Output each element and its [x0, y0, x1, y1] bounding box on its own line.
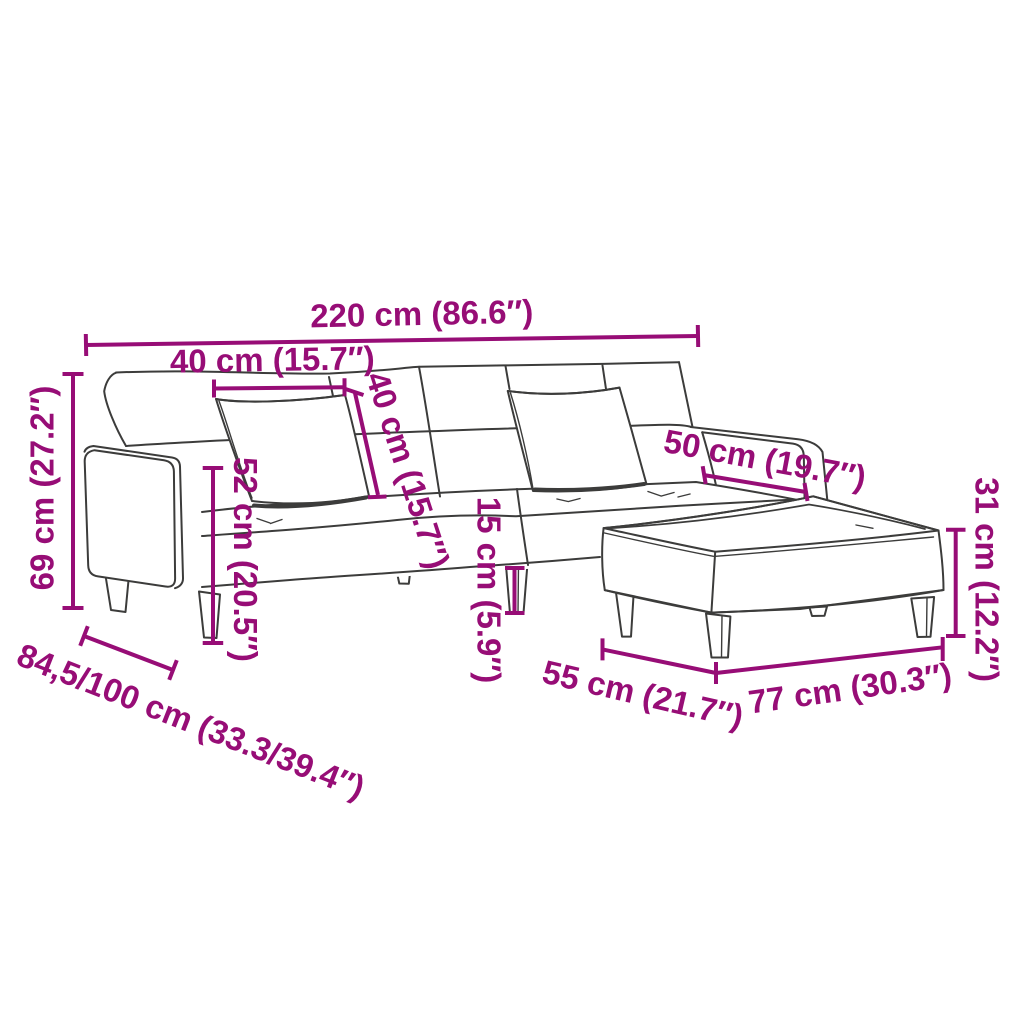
- svg-text:220 cm (86.6″): 220 cm (86.6″): [310, 293, 534, 335]
- svg-text:40 cm (15.7″): 40 cm (15.7″): [170, 339, 375, 380]
- svg-text:31 cm (12.2″): 31 cm (12.2″): [969, 477, 1006, 682]
- svg-text:15 cm (5.9″): 15 cm (5.9″): [471, 497, 508, 683]
- svg-text:52 cm (20.5″): 52 cm (20.5″): [227, 457, 264, 662]
- svg-text:69 cm (27.2″): 69 cm (27.2″): [24, 386, 61, 591]
